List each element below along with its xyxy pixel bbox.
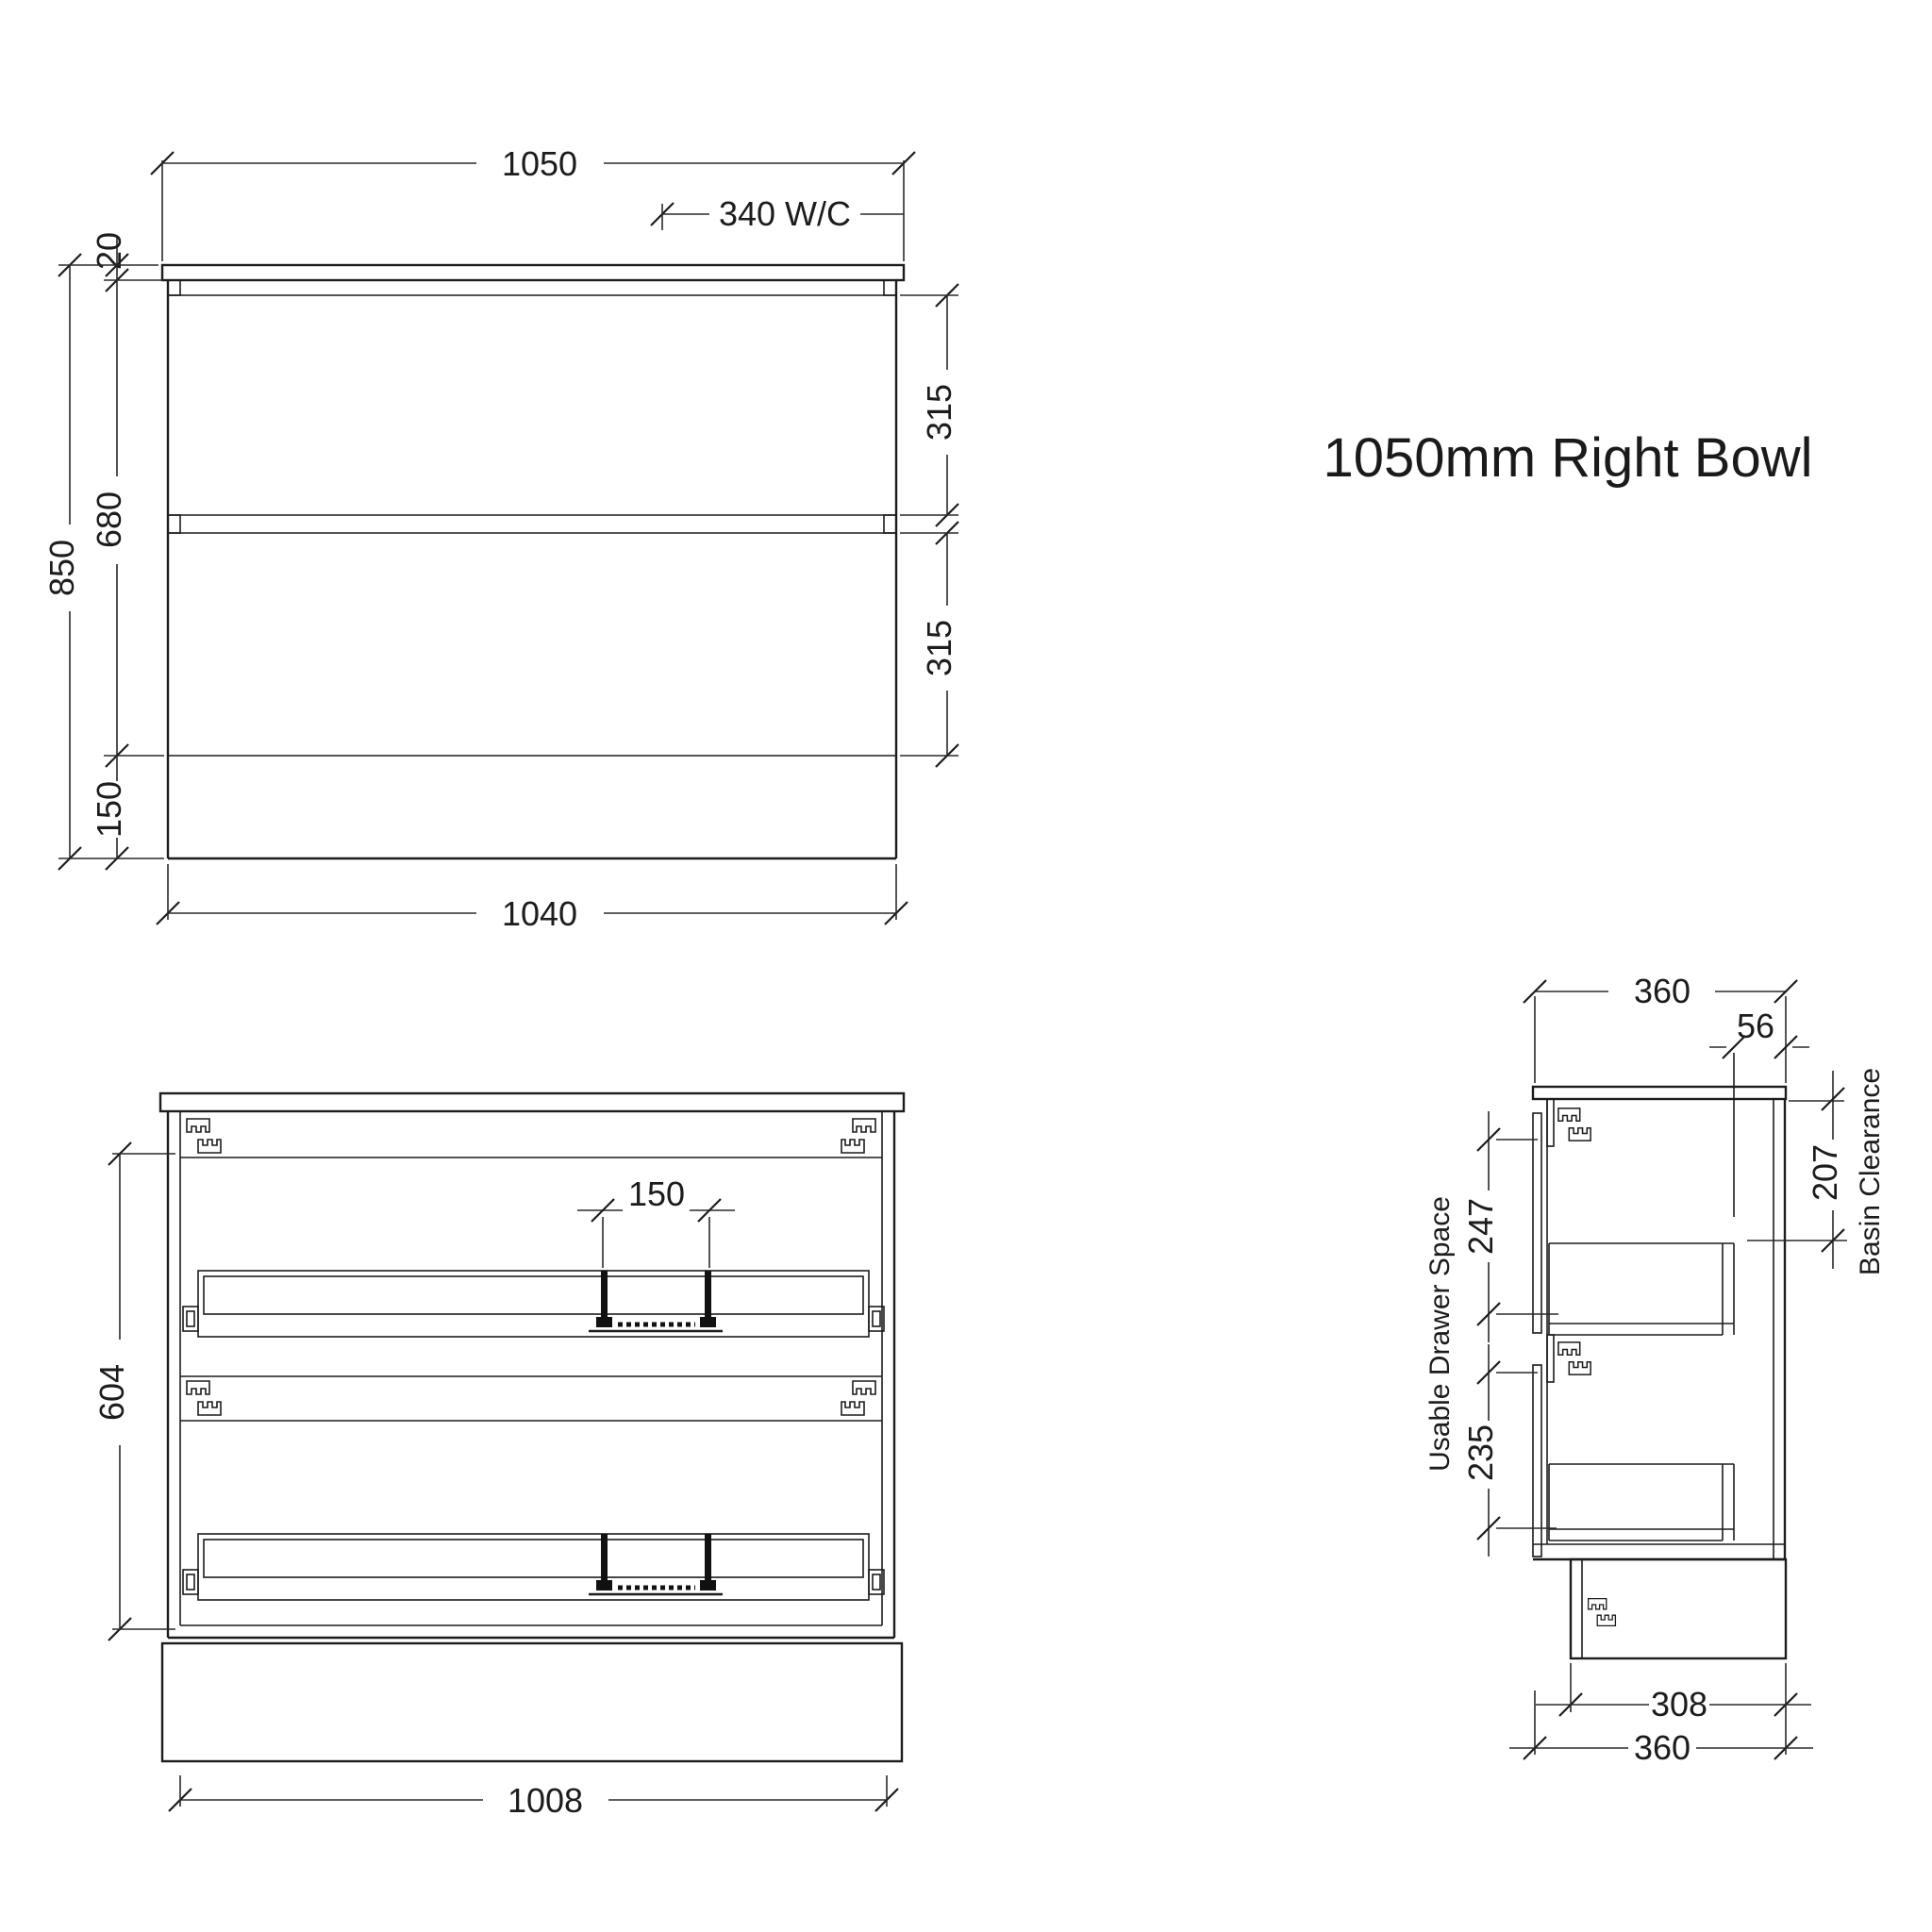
dim-label-internal-width: 1008 <box>508 1781 583 1820</box>
dim-label-top-drawer: 315 <box>920 384 958 441</box>
technical-drawing-canvas: 1050 340 W/C 20 850 <box>0 0 1932 1932</box>
usable-drawer-space-label: Usable Drawer Space <box>1424 1196 1456 1472</box>
dim-label-width-top: 1050 <box>502 144 577 183</box>
dim-label-kick-depth: 308 <box>1651 1685 1707 1724</box>
dim-label-plumbing-gap: 150 <box>628 1174 685 1213</box>
dim-label-wc-offset: 340 W/C <box>719 194 851 233</box>
dim-label-internal-height: 604 <box>92 1364 131 1421</box>
dim-label-body-height: 680 <box>90 491 128 548</box>
dim-label-top-drawer-space: 247 <box>1461 1198 1500 1255</box>
dim-label-bottom-drawer-space: 235 <box>1461 1424 1500 1481</box>
drawing-title: 1050mm Right Bowl <box>1324 427 1813 489</box>
plumbing-cutout-bar <box>601 1534 608 1583</box>
dim-label-kick-height: 150 <box>90 781 128 838</box>
dim-label-width-bottom: 1040 <box>502 894 577 933</box>
basin-clearance-label: Basin Clearance <box>1855 1068 1886 1275</box>
dim-label-basin-clearance: 207 <box>1806 1144 1844 1201</box>
plumbing-cutout-bar <box>705 1271 711 1320</box>
plumbing-cutout-bar <box>705 1534 711 1583</box>
dim-label-bottom-drawer: 315 <box>920 620 958 676</box>
dim-label-counter-thickness: 20 <box>90 232 128 270</box>
dim-label-depth-top: 360 <box>1634 972 1690 1010</box>
dim-label-depth-bottom: 360 <box>1634 1728 1690 1767</box>
dim-label-wc-setout: 56 <box>1737 1007 1774 1045</box>
plumbing-cutout-bar <box>601 1271 608 1320</box>
dim-label-total-height: 850 <box>42 540 81 596</box>
